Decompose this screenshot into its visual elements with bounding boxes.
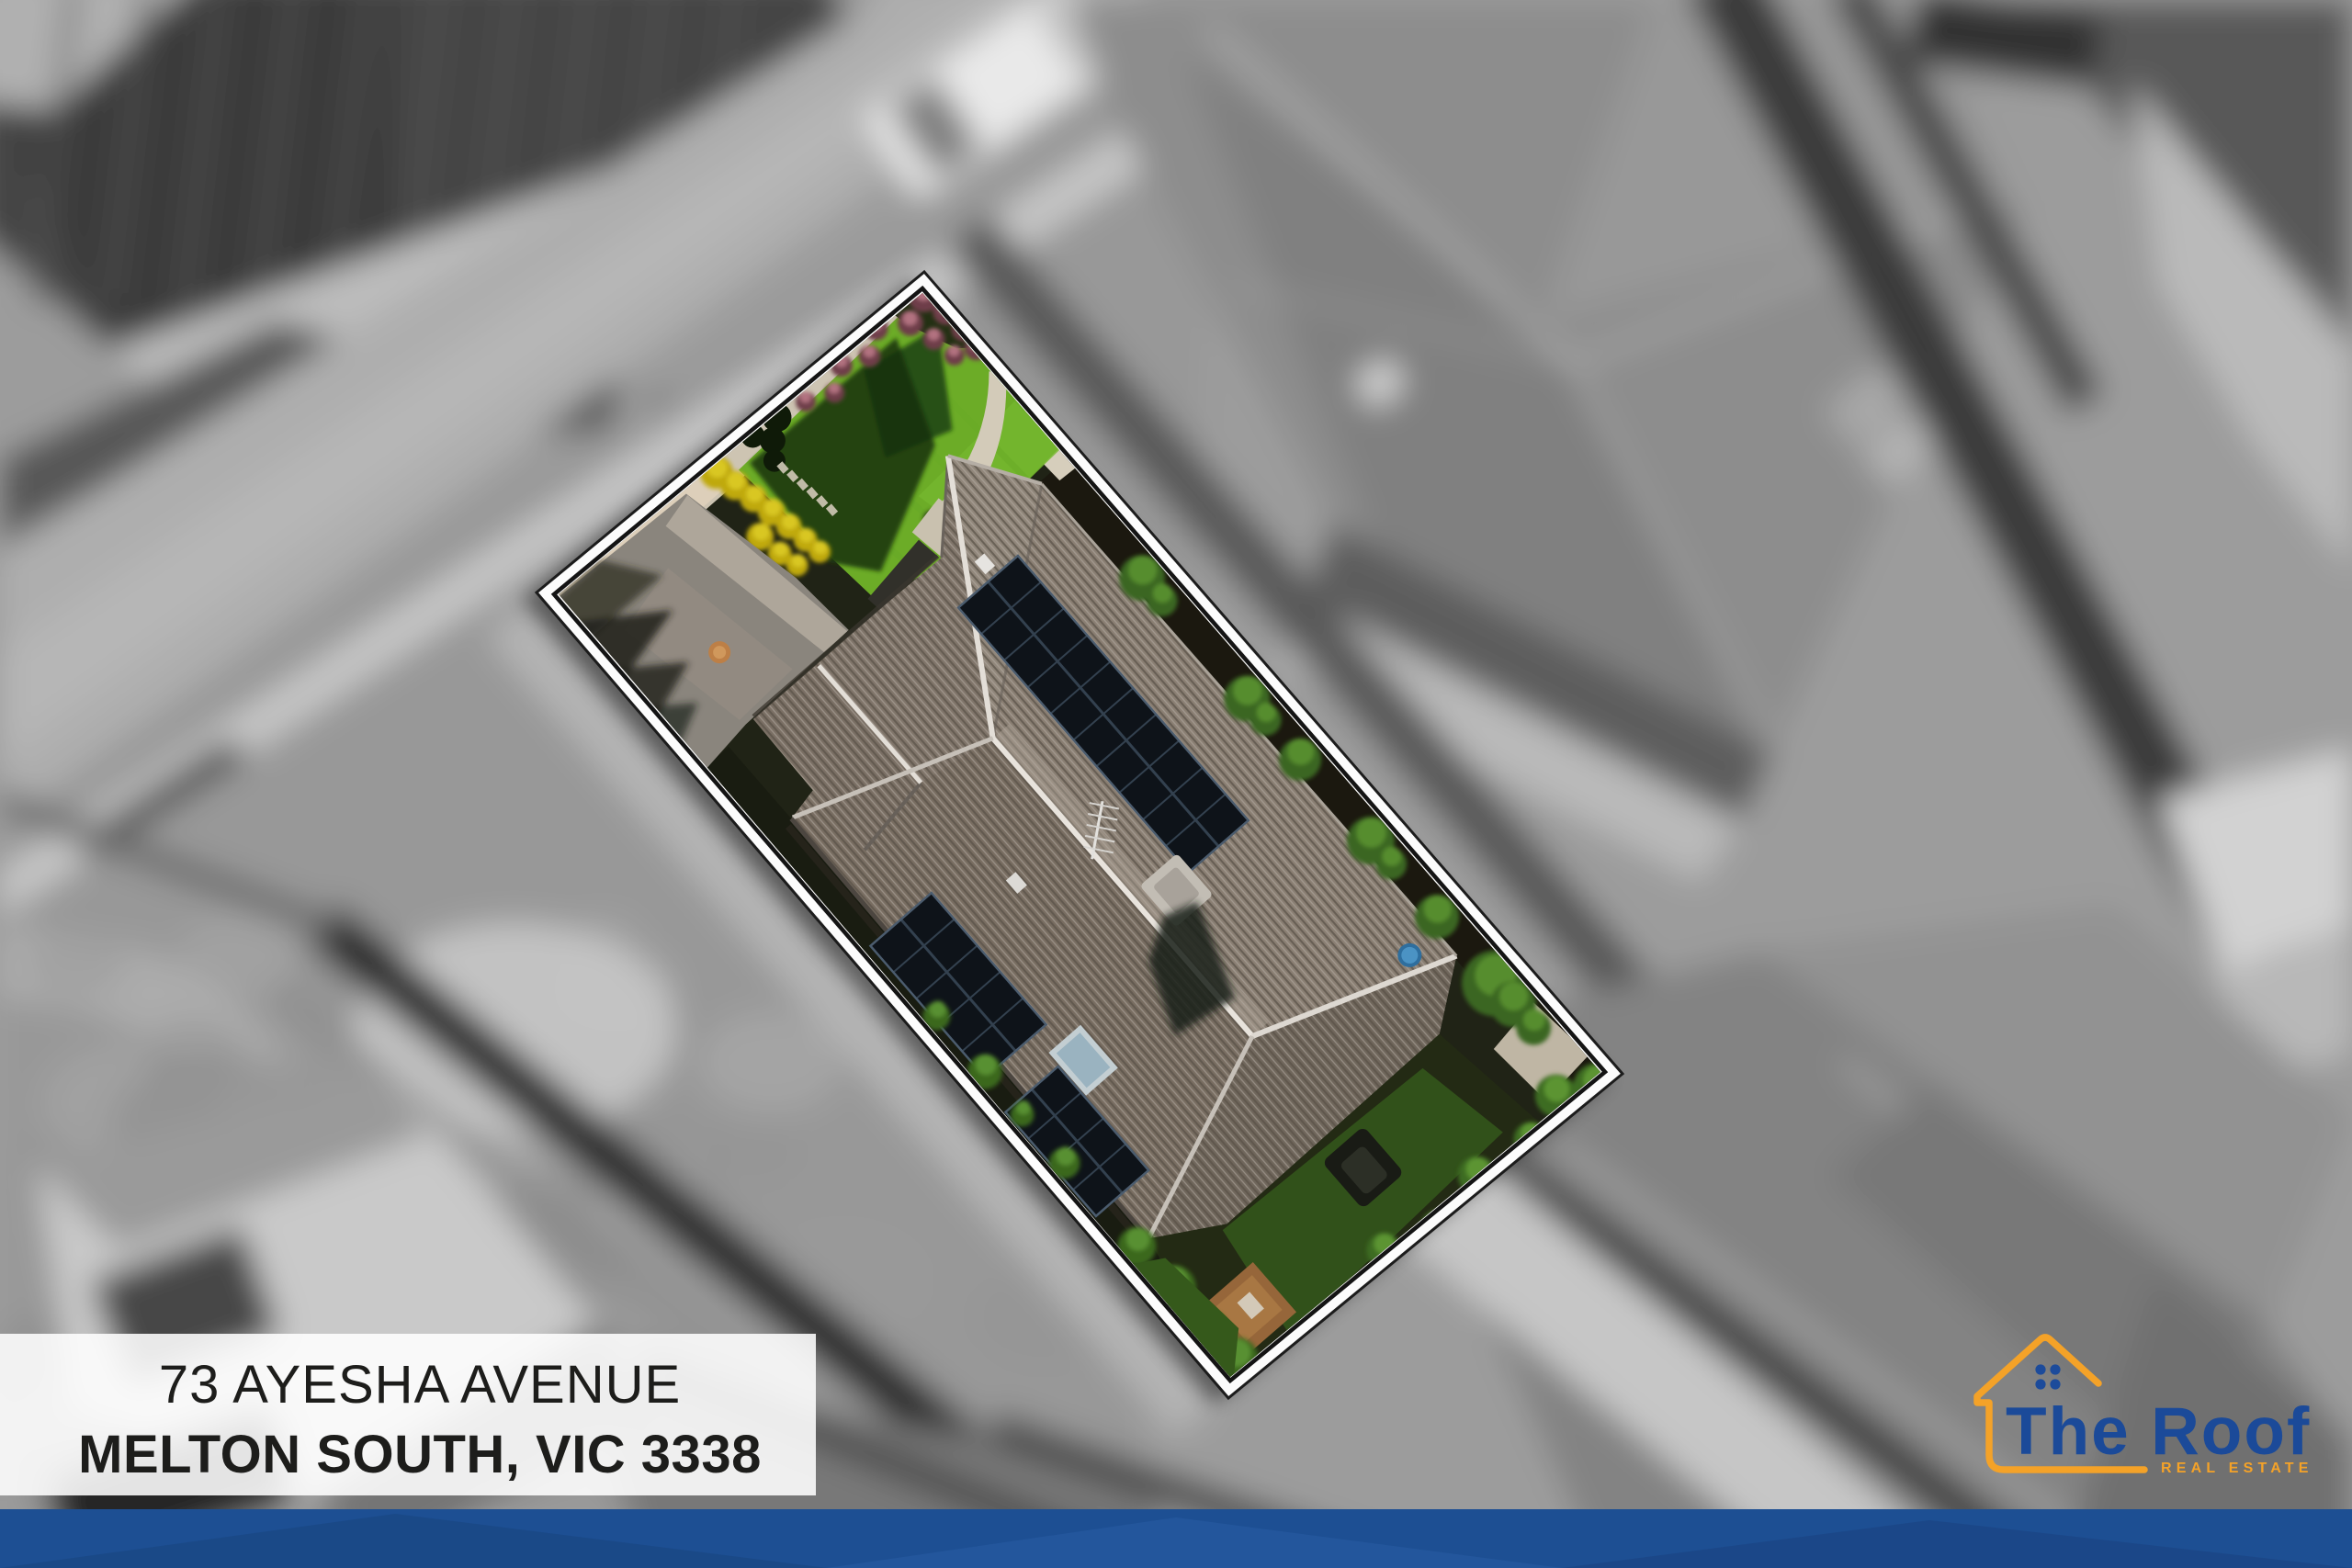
svg-text:REAL ESTATE: REAL ESTATE: [2161, 1461, 2313, 1476]
svg-text:73 AYESHA AVENUE: 73 AYESHA AVENUE: [159, 1355, 681, 1415]
svg-text:MELTON SOUTH, VIC 3338: MELTON SOUTH, VIC 3338: [78, 1425, 762, 1484]
svg-text:The Roof: The Roof: [2006, 1394, 2311, 1469]
